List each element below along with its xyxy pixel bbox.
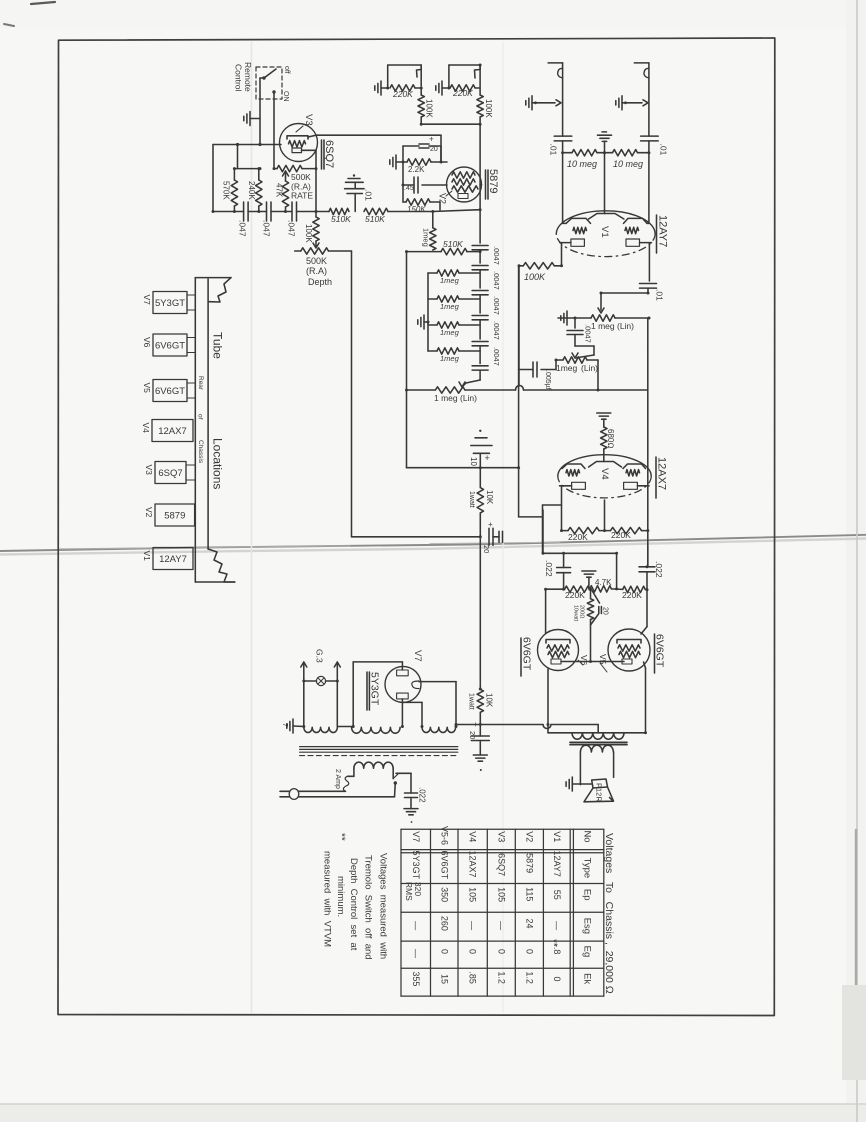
svg-text:G.3: G.3 <box>315 649 325 663</box>
svg-text:2 Amp: 2 Amp <box>334 769 341 789</box>
svg-text:.01: .01 <box>549 144 559 156</box>
svg-text:220K: 220K <box>622 590 642 600</box>
svg-text:Control: Control <box>234 64 244 92</box>
svg-text:5Y3GT: 5Y3GT <box>369 672 381 706</box>
svg-text:RMS: RMS <box>404 882 414 901</box>
svg-text:V1: V1 <box>599 226 610 238</box>
svg-text:—: — <box>552 921 562 930</box>
svg-text:6SQ7: 6SQ7 <box>496 853 506 876</box>
svg-text:220K: 220K <box>611 530 631 540</box>
svg-text:15: 15 <box>439 974 449 984</box>
svg-text:20: 20 <box>468 731 477 739</box>
svg-text:1 meg (Lin): 1 meg (Lin) <box>591 321 634 331</box>
svg-text:6V6GT: 6V6GT <box>521 637 533 671</box>
svg-text:100K: 100K <box>425 99 434 118</box>
svg-text:1meg: 1meg <box>440 276 460 285</box>
svg-text:V1: V1 <box>142 551 152 562</box>
svg-text:.01: .01 <box>659 144 669 156</box>
svg-text:Voltages To Chassis , 29,: Voltages To Chassis , 29,000 Ω <box>603 833 615 994</box>
svg-text:12AY7: 12AY7 <box>552 851 562 877</box>
svg-text:570K: 570K <box>222 181 231 200</box>
svg-text:260: 260 <box>439 916 449 931</box>
svg-text:5Y3GT: 5Y3GT <box>155 298 185 309</box>
svg-text:.047: .047 <box>238 220 248 237</box>
svg-text:RATE: RATE <box>291 191 313 201</box>
svg-text:Rear: Rear <box>197 376 204 391</box>
svg-text:—: — <box>468 921 478 930</box>
svg-text:V2: V2 <box>144 507 154 518</box>
svg-text:(Lin): (Lin) <box>581 363 598 373</box>
svg-text:P12R: P12R <box>595 783 604 802</box>
svg-text:350: 350 <box>439 887 449 902</box>
svg-text:V4: V4 <box>599 468 610 480</box>
svg-text:220K: 220K <box>565 590 585 600</box>
svg-text:No: No <box>582 830 593 842</box>
svg-text:(R.A): (R.A) <box>306 266 327 276</box>
svg-text:6V6GT: 6V6GT <box>155 341 185 352</box>
svg-text:105: 105 <box>468 887 478 902</box>
svg-text:Chassis: Chassis <box>197 440 204 464</box>
svg-text:.0047: .0047 <box>492 271 501 290</box>
svg-text:6SQ7: 6SQ7 <box>158 468 182 479</box>
svg-text:.047: .047 <box>287 220 297 237</box>
svg-text:1 meg (Lin): 1 meg (Lin) <box>434 393 477 403</box>
svg-text:6V6GT: 6V6GT <box>654 634 666 668</box>
svg-text:510K: 510K <box>443 239 463 249</box>
svg-text:—: — <box>411 921 421 930</box>
svg-text:355: 355 <box>411 971 421 986</box>
svg-text:5Y3GT: 5Y3GT <box>411 851 421 880</box>
svg-text:V7: V7 <box>411 831 421 842</box>
svg-text:off: off <box>283 66 290 74</box>
svg-text:2.2K: 2.2K <box>408 165 425 174</box>
svg-text:V4: V4 <box>468 831 478 842</box>
svg-text:100K: 100K <box>304 224 313 243</box>
svg-text:0: 0 <box>524 949 534 954</box>
svg-text:Ep: Ep <box>582 889 593 901</box>
svg-text:500K: 500K <box>291 172 311 182</box>
svg-text:.01: .01 <box>655 289 665 301</box>
svg-text:10 meg: 10 meg <box>613 159 643 169</box>
svg-text:measured with VTVM: measured with VTVM <box>322 851 333 947</box>
svg-text:.022: .022 <box>418 787 427 803</box>
svg-text:.0047: .0047 <box>492 347 501 366</box>
svg-text:500K: 500K <box>306 256 327 266</box>
svg-text:.022: .022 <box>544 560 554 577</box>
svg-text:V2: V2 <box>524 831 534 842</box>
svg-text:1watt: 1watt <box>468 491 475 508</box>
svg-text:10 meg: 10 meg <box>567 159 597 169</box>
svg-text:6V6GT: 6V6GT <box>439 851 449 880</box>
svg-text:V6: V6 <box>142 337 152 348</box>
svg-text:+: + <box>473 720 478 729</box>
svg-text:minimum.: minimum. <box>335 876 346 917</box>
svg-text:.01: .01 <box>364 189 374 201</box>
svg-text:V5-6: V5-6 <box>439 826 449 845</box>
svg-text:**: ** <box>548 939 559 947</box>
svg-text:1meg: 1meg <box>440 354 460 363</box>
svg-text:24: 24 <box>524 919 534 929</box>
svg-text:.005µf: .005µf <box>544 370 551 390</box>
svg-text:.047: .047 <box>262 220 272 237</box>
svg-text:**: ** <box>336 833 347 841</box>
svg-text:1meg: 1meg <box>556 363 578 373</box>
svg-text:12AX7: 12AX7 <box>158 426 187 437</box>
svg-text:1.2: 1.2 <box>524 971 534 984</box>
svg-text:Voltages measured with: Voltages measured with <box>378 853 389 959</box>
svg-text:7: 7 <box>281 723 288 727</box>
svg-text:510K: 510K <box>365 214 385 224</box>
svg-text:1watt: 1watt <box>468 693 475 710</box>
svg-text:Depth Control set at: Depth Control set at <box>348 858 359 951</box>
svg-text:12AY7: 12AY7 <box>159 554 187 565</box>
svg-text:0: 0 <box>468 949 478 954</box>
svg-text:10: 10 <box>469 457 478 466</box>
svg-text:105: 105 <box>496 887 506 902</box>
svg-text:0: 0 <box>439 949 449 954</box>
svg-text:.0047: .0047 <box>492 321 501 340</box>
svg-text:20: 20 <box>602 607 609 615</box>
svg-text:0: 0 <box>552 977 562 982</box>
svg-text:V3: V3 <box>144 465 154 476</box>
svg-text:12AY7: 12AY7 <box>657 215 669 247</box>
svg-text:55: 55 <box>552 890 562 900</box>
svg-text:of: of <box>197 414 204 420</box>
svg-text:ON: ON <box>282 91 289 102</box>
svg-text:6SQ7: 6SQ7 <box>323 140 335 168</box>
svg-text:510K: 510K <box>331 214 351 224</box>
svg-text:+: + <box>485 453 490 463</box>
svg-text:.0047: .0047 <box>492 246 501 265</box>
svg-text:.0047: .0047 <box>492 296 501 315</box>
svg-text:100K: 100K <box>484 99 493 118</box>
svg-text:5879: 5879 <box>164 511 185 522</box>
svg-text:47K: 47K <box>275 183 284 198</box>
svg-text:V7: V7 <box>412 650 423 662</box>
svg-text:1meg: 1meg <box>422 228 431 247</box>
svg-text:10watt: 10watt <box>573 605 579 622</box>
svg-text:10K: 10K <box>485 693 494 708</box>
svg-text:1meg: 1meg <box>440 328 460 337</box>
svg-text:12AX7: 12AX7 <box>468 851 478 878</box>
svg-text:10K: 10K <box>485 490 494 505</box>
svg-text:1meg: 1meg <box>440 302 460 311</box>
svg-text:12AX7: 12AX7 <box>656 457 668 490</box>
svg-text:—: — <box>496 921 506 930</box>
svg-text:220K: 220K <box>452 88 473 98</box>
svg-text:V5: V5 <box>598 654 608 665</box>
svg-text:.0047: .0047 <box>584 324 593 343</box>
svg-text:220K: 220K <box>568 532 588 542</box>
svg-text:4.7K: 4.7K <box>595 578 612 587</box>
svg-text:Type: Type <box>582 858 593 879</box>
svg-text:V3: V3 <box>496 831 506 842</box>
svg-text:0: 0 <box>496 949 506 954</box>
svg-text:Depth: Depth <box>308 277 332 287</box>
svg-text:Esg: Esg <box>582 918 593 934</box>
svg-text:Ek: Ek <box>582 973 593 984</box>
svg-text:.85: .85 <box>468 971 478 984</box>
svg-text:20: 20 <box>482 545 491 553</box>
svg-text:Tremolo Switch off and: Tremolo Switch off and <box>363 855 374 960</box>
svg-text:Locations: Locations <box>211 438 225 489</box>
svg-text:—: — <box>411 949 421 958</box>
svg-text:Tube: Tube <box>211 332 225 359</box>
svg-text:V5: V5 <box>142 383 152 394</box>
svg-text:V7: V7 <box>142 295 152 306</box>
svg-text:V1: V1 <box>552 831 562 842</box>
svg-text:1.2: 1.2 <box>496 971 506 984</box>
svg-text:5879: 5879 <box>487 169 499 193</box>
svg-text:100K: 100K <box>524 272 546 282</box>
svg-text:220K: 220K <box>392 89 413 99</box>
svg-text:680Ω: 680Ω <box>606 429 615 449</box>
svg-text:.45: .45 <box>404 185 414 192</box>
svg-text:+: + <box>429 135 434 144</box>
svg-text:6V6GT: 6V6GT <box>155 386 185 397</box>
svg-text:Eg: Eg <box>582 946 593 958</box>
svg-text:20: 20 <box>430 146 438 153</box>
svg-text:V6: V6 <box>579 655 589 666</box>
svg-text:5879: 5879 <box>524 853 534 873</box>
svg-text:V4: V4 <box>141 423 151 434</box>
svg-text:Remote: Remote <box>243 62 253 92</box>
svg-text:.022: .022 <box>654 561 664 578</box>
svg-text:115: 115 <box>524 887 534 901</box>
svg-text:240K: 240K <box>247 181 256 200</box>
svg-text:150K: 150K <box>407 205 426 214</box>
